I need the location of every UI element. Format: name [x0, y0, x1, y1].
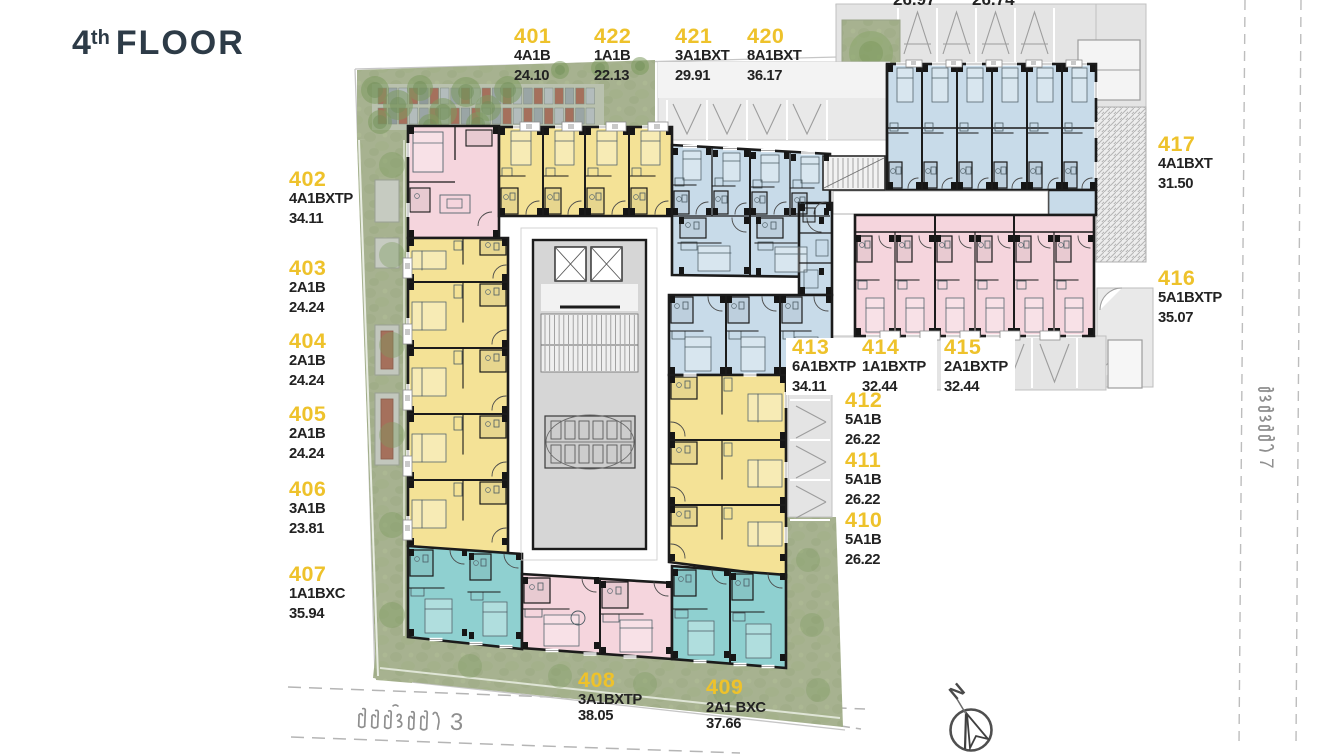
svg-text:31.50: 31.50 [1158, 176, 1193, 192]
svg-text:22.13: 22.13 [594, 68, 629, 84]
svg-text:406: 406 [289, 477, 326, 501]
svg-text:402: 402 [289, 167, 326, 191]
svg-text:403: 403 [289, 256, 326, 280]
svg-text:4A1BXT: 4A1BXT [1158, 156, 1213, 172]
svg-text:26.22: 26.22 [845, 552, 880, 568]
svg-text:5A1BXTP: 5A1BXTP [1158, 290, 1222, 306]
svg-text:5A1B: 5A1B [845, 472, 882, 488]
svg-text:4A1B: 4A1B [514, 48, 551, 64]
svg-text:24.24: 24.24 [289, 446, 325, 462]
svg-text:34.11: 34.11 [289, 211, 323, 227]
svg-text:414: 414 [862, 335, 899, 359]
svg-text:34.11: 34.11 [792, 379, 826, 395]
svg-text:26.97: 26.97 [893, 0, 936, 9]
svg-text:24.24: 24.24 [289, 373, 325, 389]
svg-text:412: 412 [845, 388, 882, 412]
svg-text:401: 401 [514, 24, 551, 48]
svg-text:38.05: 38.05 [578, 708, 613, 724]
svg-text:410: 410 [845, 508, 882, 532]
svg-text:36.17: 36.17 [747, 68, 782, 84]
svg-text:415: 415 [944, 335, 981, 359]
svg-text:404: 404 [289, 329, 326, 353]
svg-text:26.22: 26.22 [845, 432, 880, 448]
svg-text:420: 420 [747, 24, 784, 48]
svg-text:23.81: 23.81 [289, 521, 324, 537]
svg-text:26.74: 26.74 [972, 0, 1015, 9]
svg-text:408: 408 [578, 668, 615, 692]
svg-text:411: 411 [845, 448, 881, 472]
svg-text:24.24: 24.24 [289, 300, 325, 316]
svg-text:1A1BXTP: 1A1BXTP [862, 359, 926, 375]
svg-text:3: 3 [449, 709, 463, 737]
svg-text:2A1B: 2A1B [289, 353, 326, 369]
svg-text:417: 417 [1158, 132, 1195, 156]
svg-text:4A1BXTP: 4A1BXTP [289, 191, 353, 207]
svg-text:5A1B: 5A1B [845, 412, 882, 428]
svg-text:416: 416 [1158, 266, 1195, 290]
svg-text:8A1BXT: 8A1BXT [747, 48, 802, 64]
svg-text:29.91: 29.91 [675, 68, 710, 84]
svg-text:3A1BXTP: 3A1BXTP [578, 692, 642, 708]
svg-text:405: 405 [289, 402, 326, 426]
svg-text:407: 407 [289, 562, 326, 586]
svg-text:7: 7 [1255, 458, 1276, 469]
svg-text:5A1B: 5A1B [845, 532, 882, 548]
svg-text:2A1B: 2A1B [289, 426, 326, 442]
svg-text:3A1BXT: 3A1BXT [675, 48, 730, 64]
svg-text:35.94: 35.94 [289, 606, 325, 622]
svg-text:35.07: 35.07 [1158, 310, 1193, 326]
svg-text:409: 409 [706, 675, 743, 699]
svg-text:2A1 BXC: 2A1 BXC [706, 700, 766, 716]
svg-text:24.10: 24.10 [514, 68, 549, 84]
svg-text:1A1BXC: 1A1BXC [289, 586, 346, 602]
svg-text:421: 421 [675, 24, 712, 48]
svg-text:2A1B: 2A1B [289, 280, 326, 296]
svg-text:422: 422 [594, 24, 631, 48]
svg-text:2A1BXTP: 2A1BXTP [944, 359, 1008, 375]
svg-text:37.66: 37.66 [706, 716, 741, 732]
svg-text:32.44: 32.44 [944, 379, 980, 395]
svg-text:3A1B: 3A1B [289, 501, 326, 517]
svg-text:413: 413 [792, 335, 829, 359]
svg-text:26.22: 26.22 [845, 492, 880, 508]
svg-text:6A1BXTP: 6A1BXTP [792, 359, 856, 375]
svg-text:1A1B: 1A1B [594, 48, 631, 64]
